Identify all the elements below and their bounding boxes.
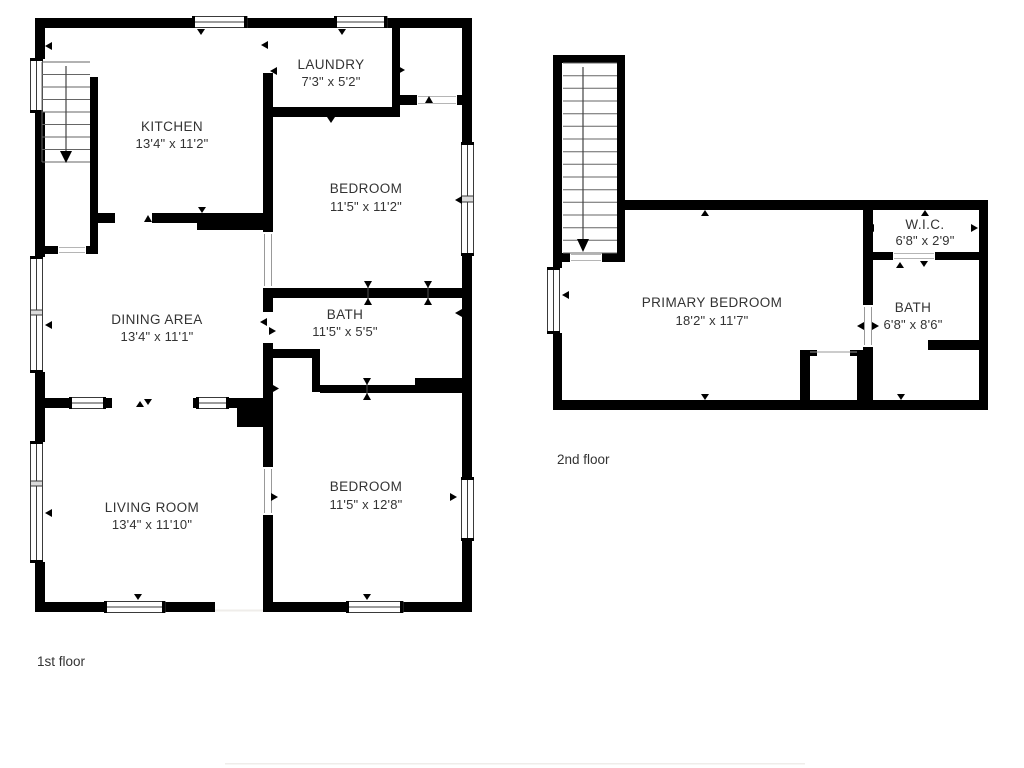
room-label-kitchen: KITCHEN [141,119,203,134]
window [461,142,474,256]
room-label-bath-first: BATH [327,307,364,322]
second-floor-room-labels: PRIMARY BEDROOM 18'2" x 11'7" W.I.C. 6'8… [642,217,955,332]
room-dims-laundry: 7'3" x 5'2" [301,74,360,89]
room-label-dining: DINING AREA [111,312,202,327]
second-floor-windows [547,267,560,334]
stairs-down-arrow [577,239,589,252]
window [104,601,165,613]
window [461,477,474,541]
window [192,16,247,28]
window [30,256,43,373]
room-dims-dining: 13'4" x 11'1" [121,329,194,344]
room-dims-bath-second: 6'8" x 8'6" [883,317,942,332]
room-dims-bedroom-upper: 11'5" x 11'2" [330,199,402,214]
room-label-laundry: LAUNDRY [297,57,364,72]
room-dims-bath-first: 11'5" x 5'5" [312,324,378,339]
room-label-bath-second: BATH [895,300,932,315]
stairs-down-arrow [60,151,72,163]
window [30,58,43,113]
room-label-living: LIVING ROOM [105,500,199,515]
room-dims-wic: 6'8" x 2'9" [895,233,954,248]
window [196,397,229,409]
faint-divider-line [225,763,805,765]
window [346,601,403,613]
second-floor-label: 2nd floor [557,452,610,467]
first-floor-plan: KITCHEN 13'4" x 11'2" LAUNDRY 7'3" x 5'2… [30,16,474,669]
first-floor-door-frames [59,97,456,612]
room-label-bedroom-lower: BEDROOM [330,479,403,494]
room-dims-living: 13'4" x 11'10" [112,517,193,532]
room-dims-kitchen: 13'4" x 11'2" [136,136,209,151]
room-dims-primary-bedroom: 18'2" x 11'7" [676,313,749,328]
first-floor-label: 1st floor [37,654,86,669]
floorplan-page: KITCHEN 13'4" x 11'2" LAUNDRY 7'3" x 5'2… [0,0,1024,768]
room-dims-bedroom-lower: 11'5" x 12'8" [330,497,403,512]
floorplan-canvas: KITCHEN 13'4" x 11'2" LAUNDRY 7'3" x 5'2… [0,0,1024,768]
room-label-bedroom-upper: BEDROOM [330,181,403,196]
room-label-wic: W.I.C. [905,217,944,232]
second-floor-stairs [563,63,617,253]
first-floor-stairs [42,62,90,163]
window [334,16,387,28]
window [30,441,43,563]
second-floor-plan: PRIMARY BEDROOM 18'2" x 11'7" W.I.C. 6'8… [547,55,988,467]
window [547,267,560,334]
first-floor-walls [35,18,472,612]
room-label-primary-bedroom: PRIMARY BEDROOM [642,295,783,310]
window [69,397,106,409]
